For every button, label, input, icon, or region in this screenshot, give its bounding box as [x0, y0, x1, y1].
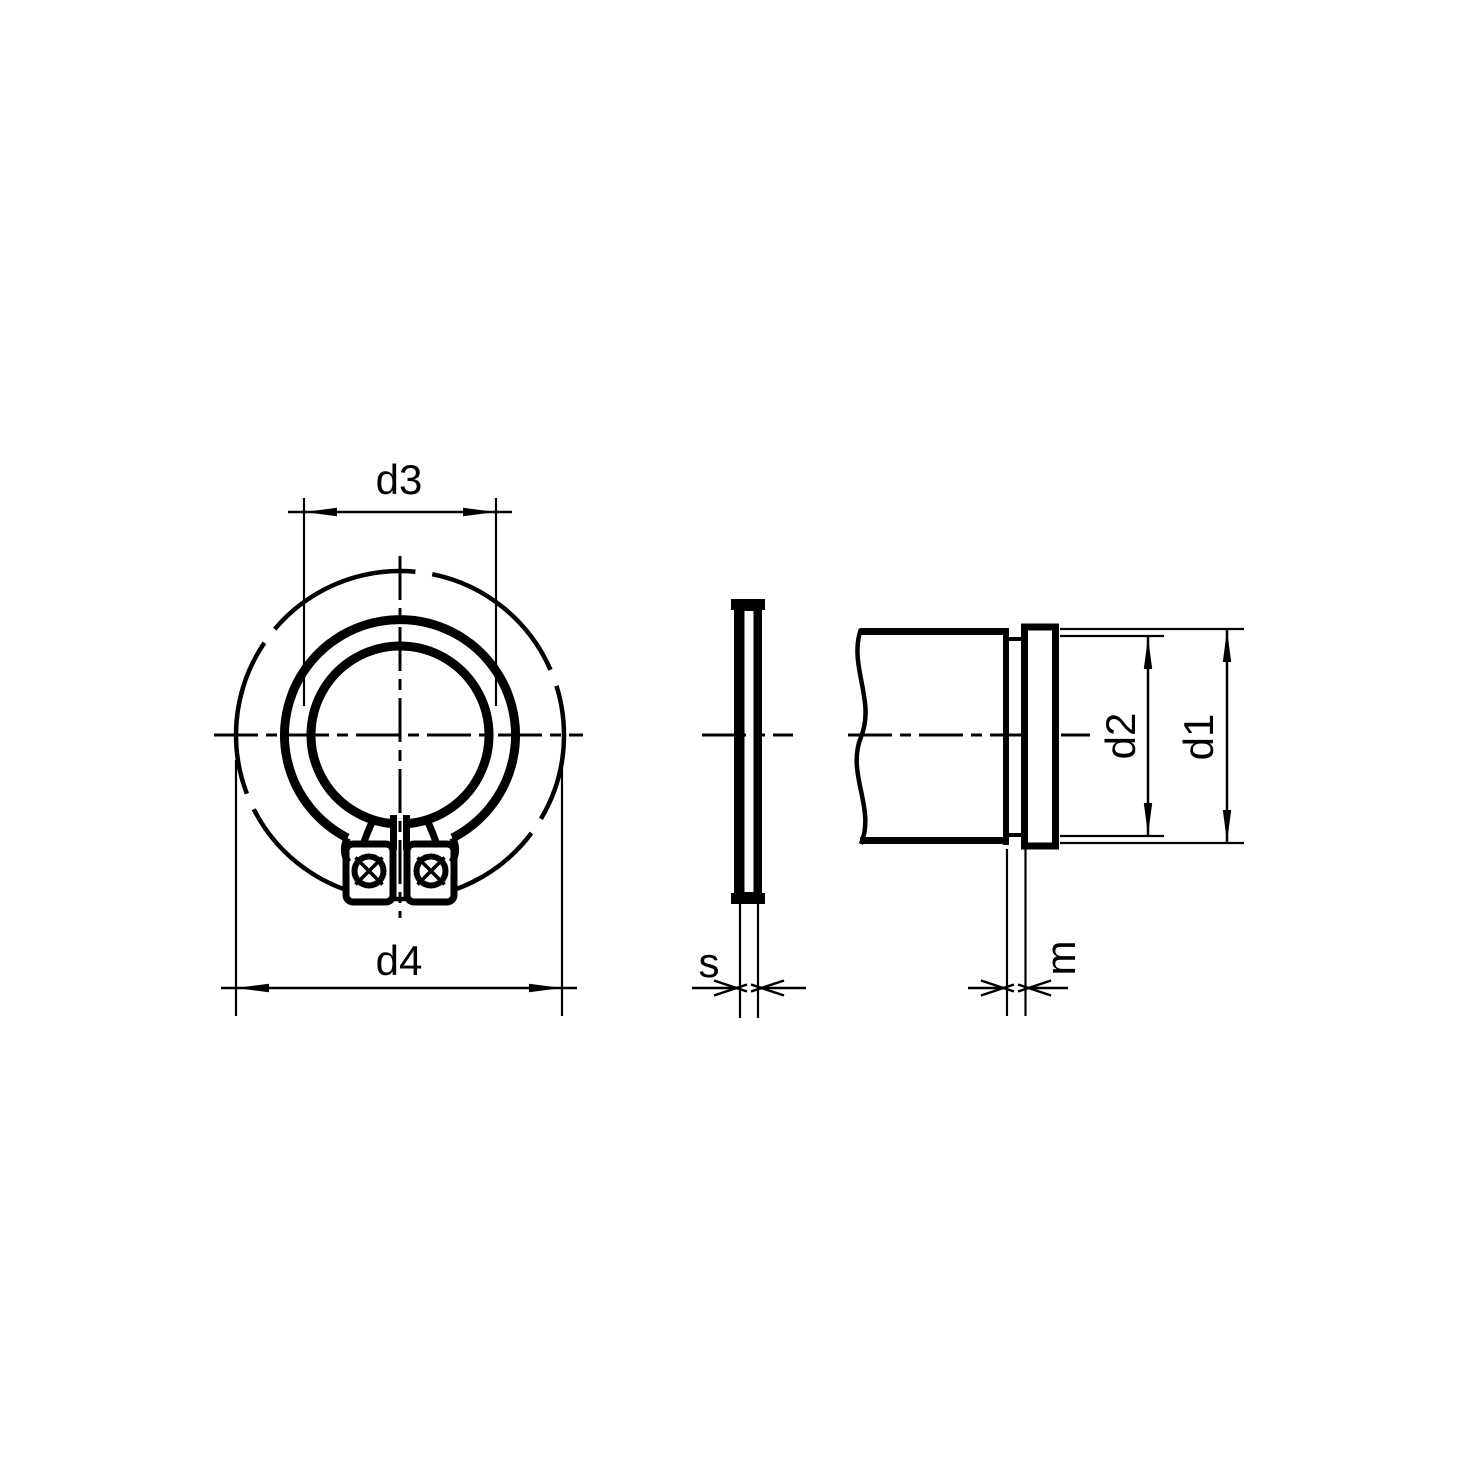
- arrowhead-d1-top: [1223, 630, 1231, 662]
- arrowhead-d4-right: [529, 984, 562, 993]
- arrowhead-d3-left: [304, 508, 337, 516]
- label-m: m: [1037, 941, 1084, 976]
- label-d2: d2: [1097, 713, 1144, 760]
- circlip-arm-outer-left: [344, 838, 348, 862]
- label-d4: d4: [376, 937, 423, 984]
- arrowhead-d2-top: [1144, 637, 1152, 669]
- technical-drawing-circlip: d3 d4 s: [0, 0, 1472, 1472]
- arrowhead-d4-left: [236, 984, 269, 993]
- shaft-view: m d2 d1: [848, 627, 1244, 1016]
- ring-seated-section: [1025, 627, 1056, 846]
- label-s: s: [699, 939, 720, 986]
- arrowhead-d1-bottom: [1223, 810, 1231, 842]
- arrowhead-d2-bottom: [1144, 803, 1152, 835]
- side-view-circlip: s: [692, 599, 806, 1018]
- ring-section-inner-slot: [745, 611, 754, 892]
- circlip-arm-outer-right: [452, 838, 456, 862]
- label-d3: d3: [376, 456, 423, 503]
- drawing-canvas: d3 d4 s: [0, 0, 1472, 1472]
- front-view-circlip: d3 d4: [214, 456, 583, 1016]
- arrowhead-d3-right: [463, 508, 496, 516]
- label-d1: d1: [1175, 714, 1222, 761]
